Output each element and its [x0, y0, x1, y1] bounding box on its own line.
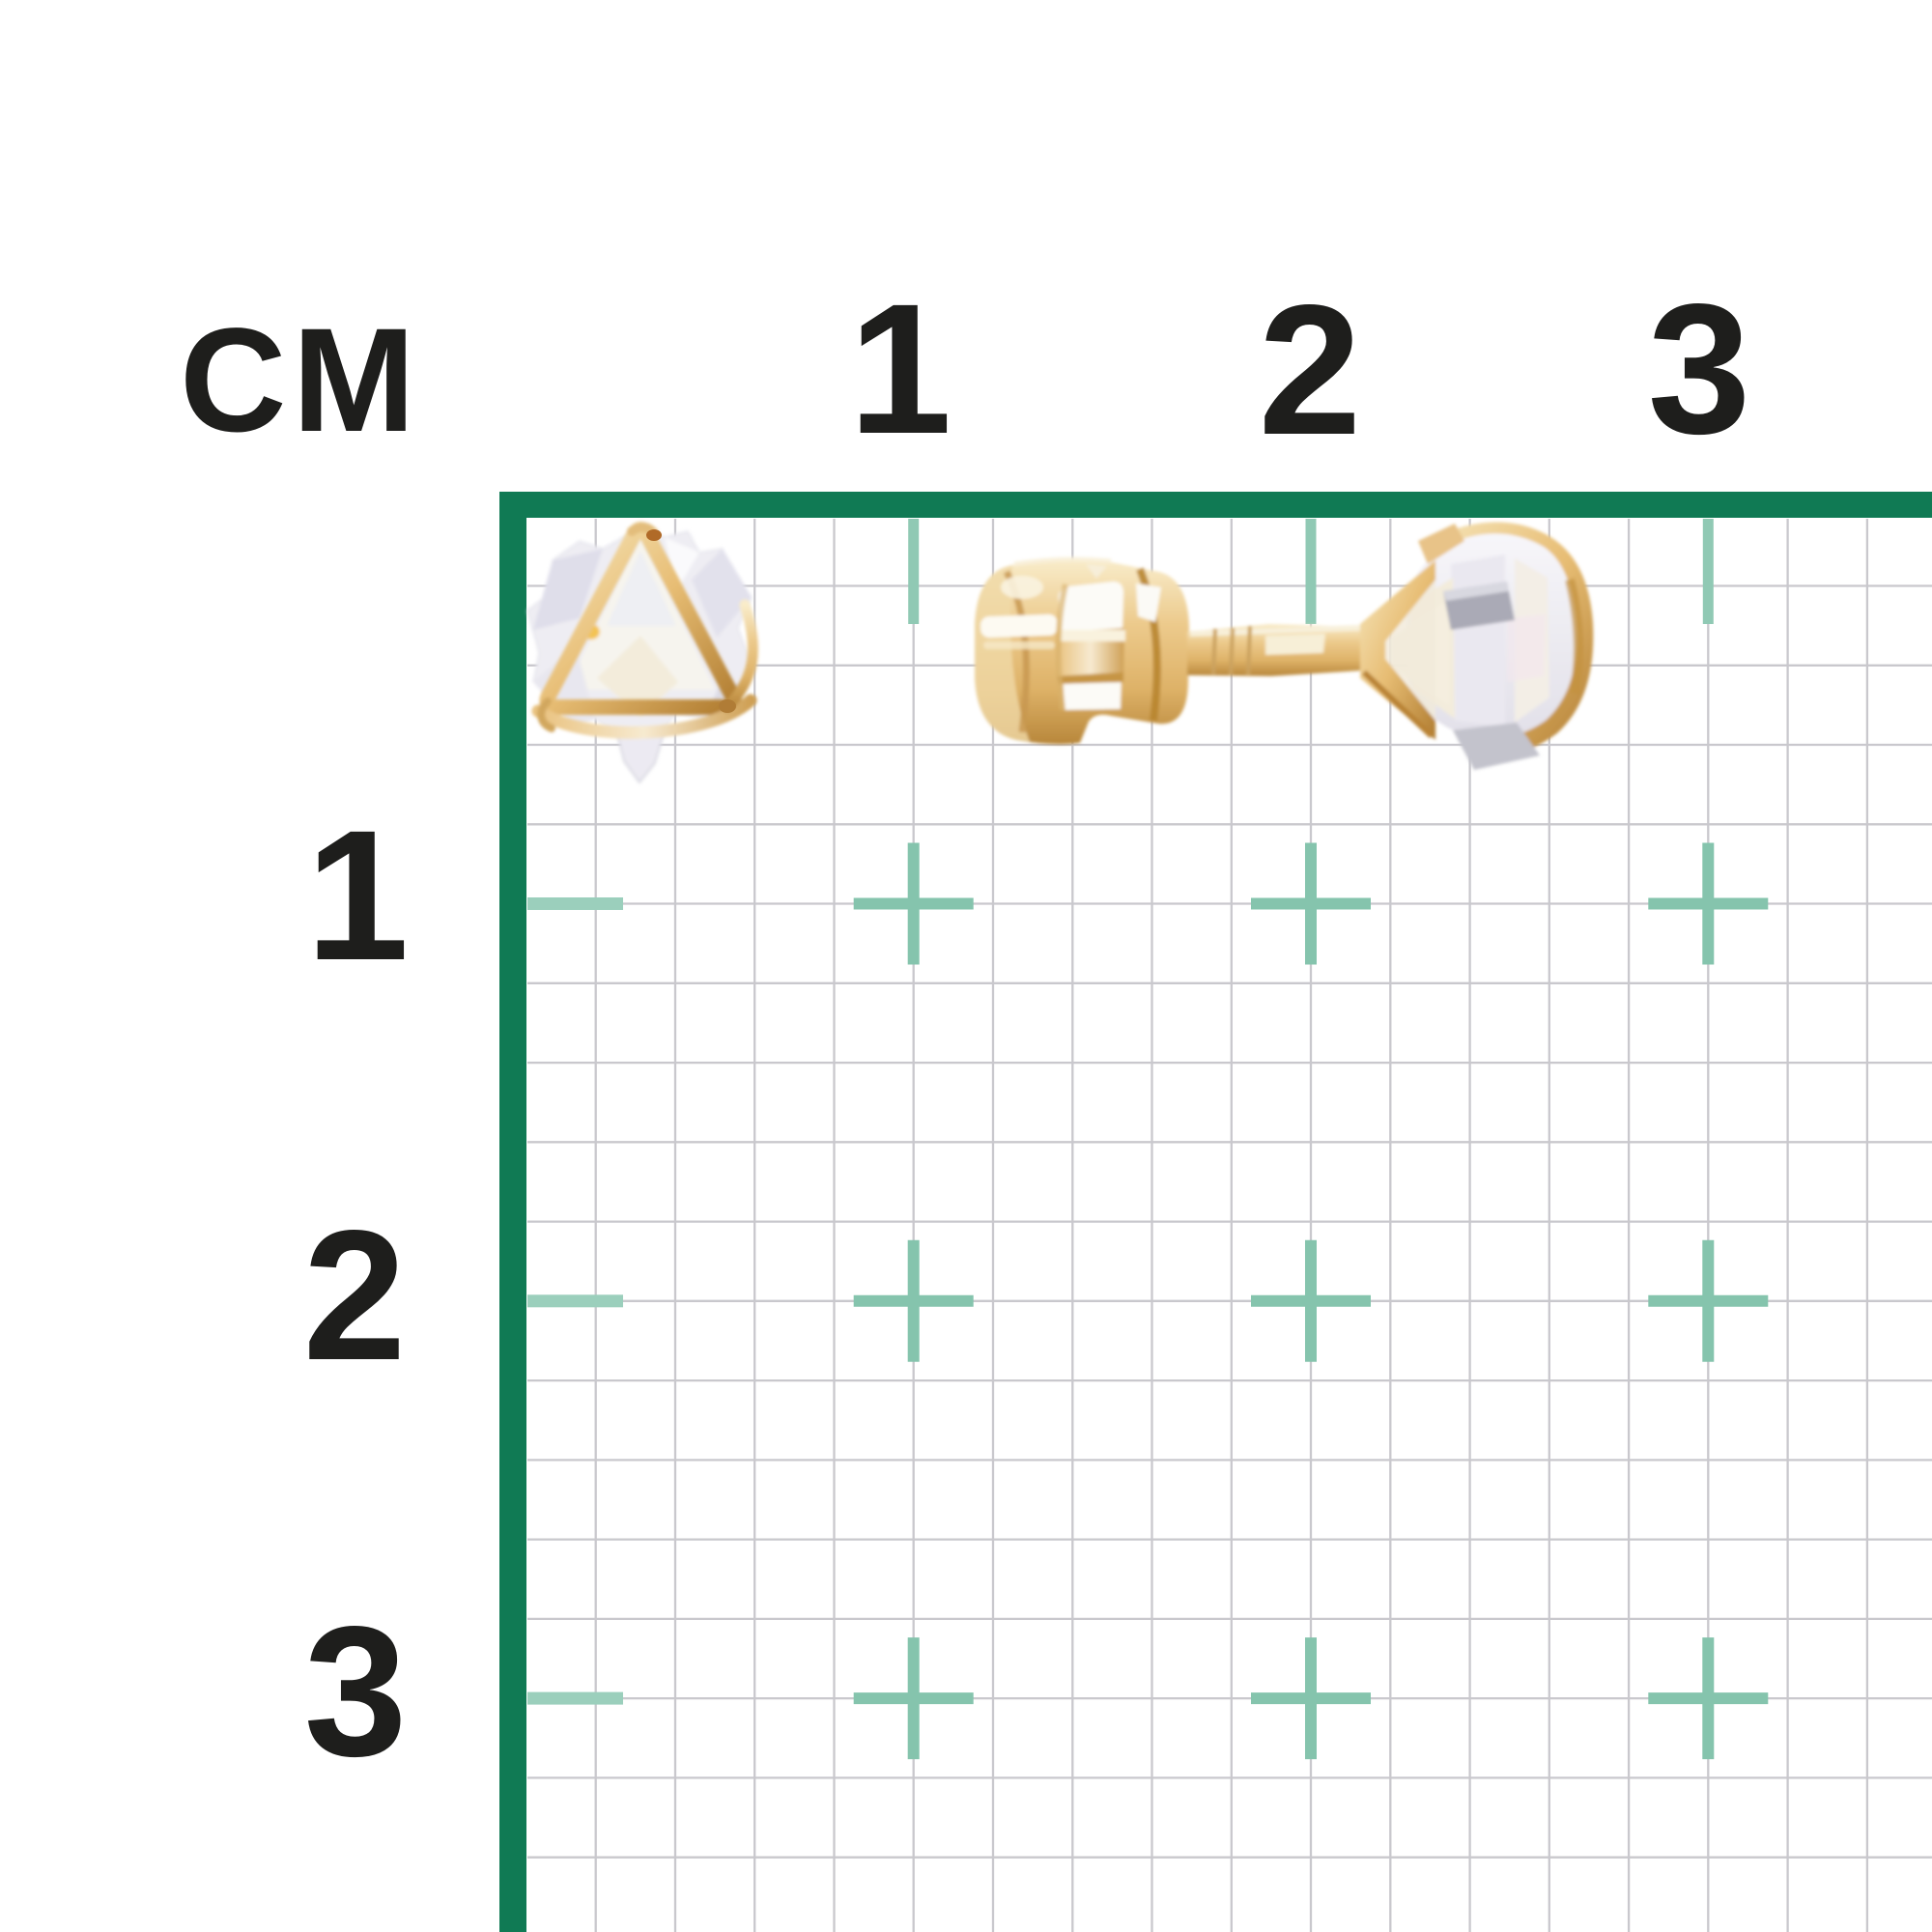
- svg-text:СМ: СМ: [180, 298, 423, 463]
- svg-text:1: 1: [849, 265, 952, 472]
- svg-text:3: 3: [304, 1587, 408, 1795]
- svg-text:1: 1: [306, 791, 410, 999]
- svg-text:3: 3: [1648, 265, 1751, 472]
- svg-text:2: 2: [303, 1191, 407, 1399]
- svg-text:2: 2: [1259, 266, 1362, 473]
